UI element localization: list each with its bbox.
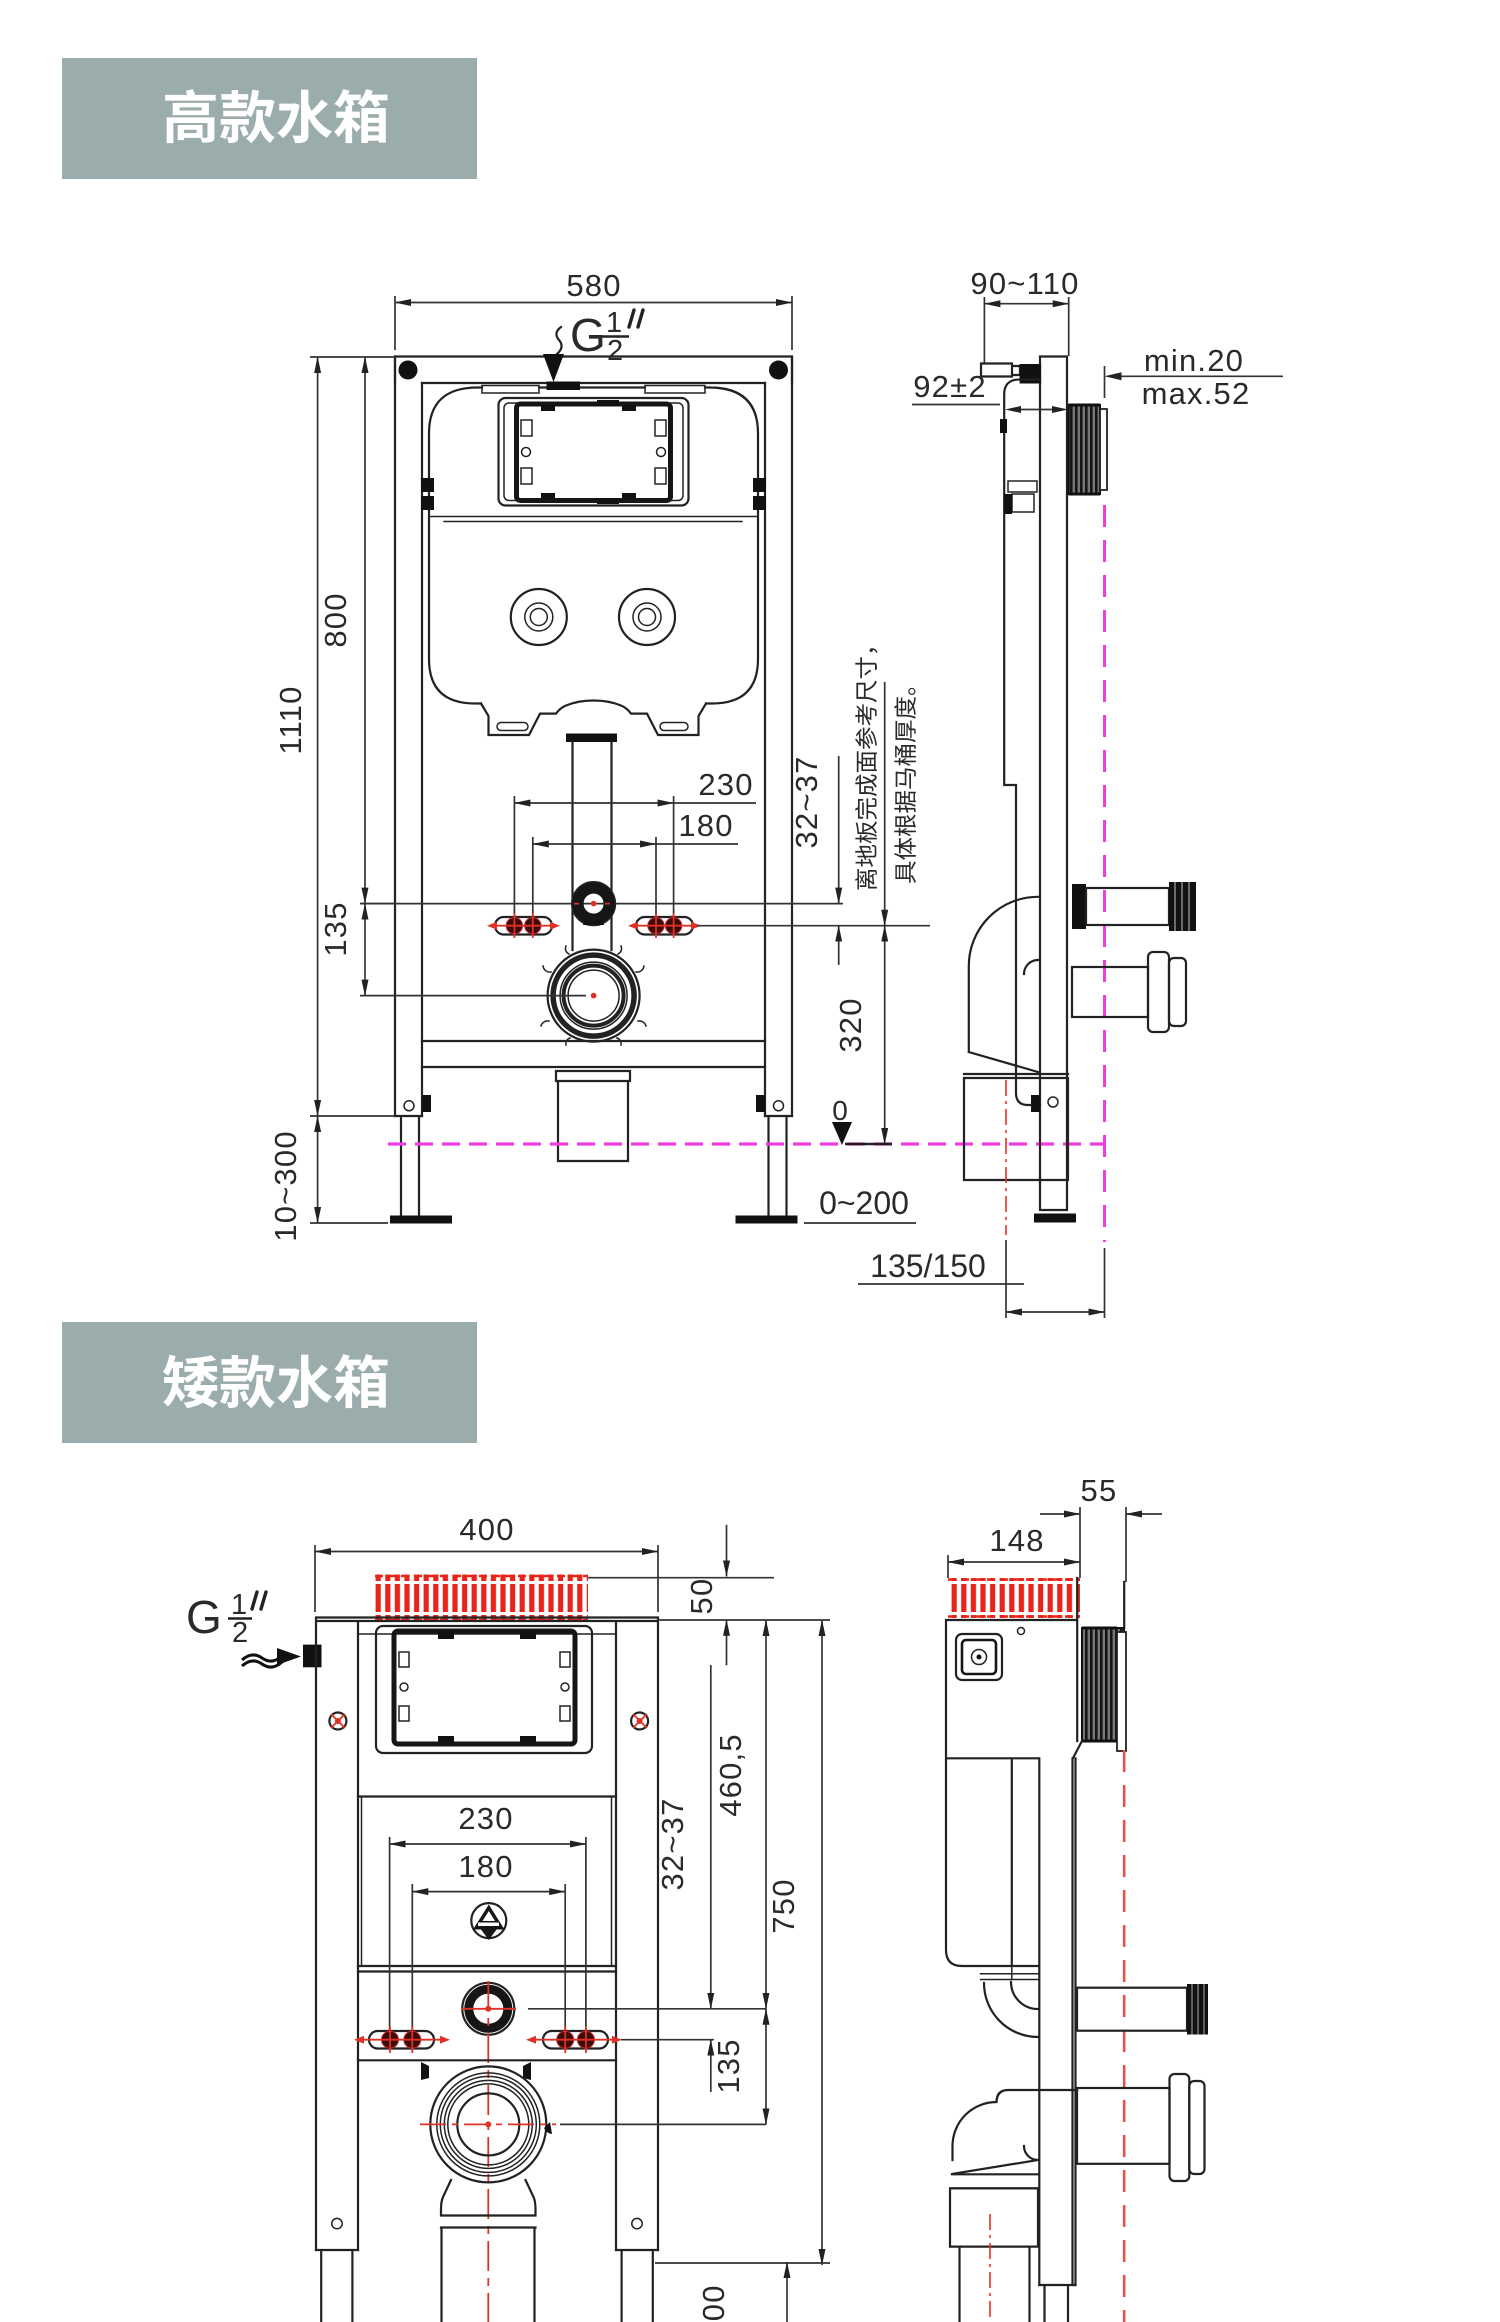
svg-text:135: 135 [711, 2038, 746, 2093]
svg-text:230: 230 [458, 1801, 513, 1836]
svg-text:180: 180 [678, 808, 733, 843]
svg-text:148: 148 [989, 1523, 1044, 1558]
svg-text:G: G [570, 309, 606, 361]
svg-text:50: 50 [684, 1578, 719, 1615]
svg-text:180: 180 [458, 1849, 513, 1884]
svg-text:32~37: 32~37 [789, 755, 824, 848]
svg-text:320: 320 [833, 997, 868, 1052]
svg-text:135: 135 [318, 901, 353, 956]
svg-text:92±2: 92±2 [913, 369, 987, 404]
svg-text:580: 580 [566, 268, 621, 303]
svg-text:600: 600 [696, 2284, 731, 2322]
svg-text:90~110: 90~110 [970, 266, 1079, 301]
svg-text:2: 2 [232, 1617, 248, 1649]
svg-text:2: 2 [607, 335, 623, 367]
svg-text:800: 800 [318, 592, 353, 647]
svg-text:750: 750 [766, 1878, 801, 1933]
svg-text:0~200: 0~200 [819, 1185, 909, 1221]
svg-text:G: G [186, 1591, 222, 1643]
svg-text:400: 400 [459, 1512, 514, 1547]
svg-text:230: 230 [698, 767, 753, 802]
svg-text:min.20: min.20 [1144, 343, 1244, 378]
svg-text:max.52: max.52 [1142, 376, 1251, 411]
svg-text:32~37: 32~37 [655, 1797, 690, 1890]
svg-text:1110: 1110 [273, 685, 308, 754]
svg-text:10~300: 10~300 [268, 1130, 303, 1242]
svg-text:0: 0 [832, 1095, 848, 1126]
svg-text:55: 55 [1081, 1473, 1118, 1508]
svg-text:460,5: 460,5 [713, 1733, 748, 1817]
svg-text:135/150: 135/150 [870, 1248, 986, 1284]
